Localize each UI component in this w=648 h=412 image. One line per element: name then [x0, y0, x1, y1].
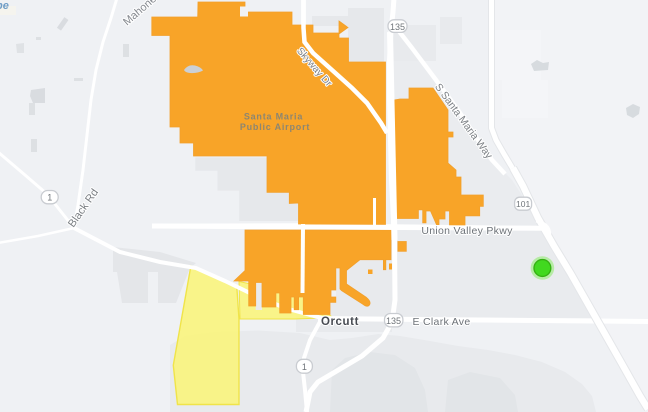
svg-text:Union Valley Pkwy: Union Valley Pkwy: [421, 225, 513, 237]
svg-text:1: 1: [302, 362, 307, 372]
svg-text:E Clark Ave: E Clark Ave: [413, 316, 471, 328]
svg-text:1: 1: [47, 193, 52, 203]
svg-text:101: 101: [516, 199, 530, 209]
svg-text:pe: pe: [0, 0, 9, 12]
svg-text:Orcutt: Orcutt: [321, 316, 359, 328]
svg-text:135: 135: [390, 22, 405, 32]
svg-text:Public Airport: Public Airport: [240, 122, 310, 132]
svg-text:Santa Maria: Santa Maria: [244, 112, 304, 122]
svg-text:135: 135: [386, 316, 401, 326]
